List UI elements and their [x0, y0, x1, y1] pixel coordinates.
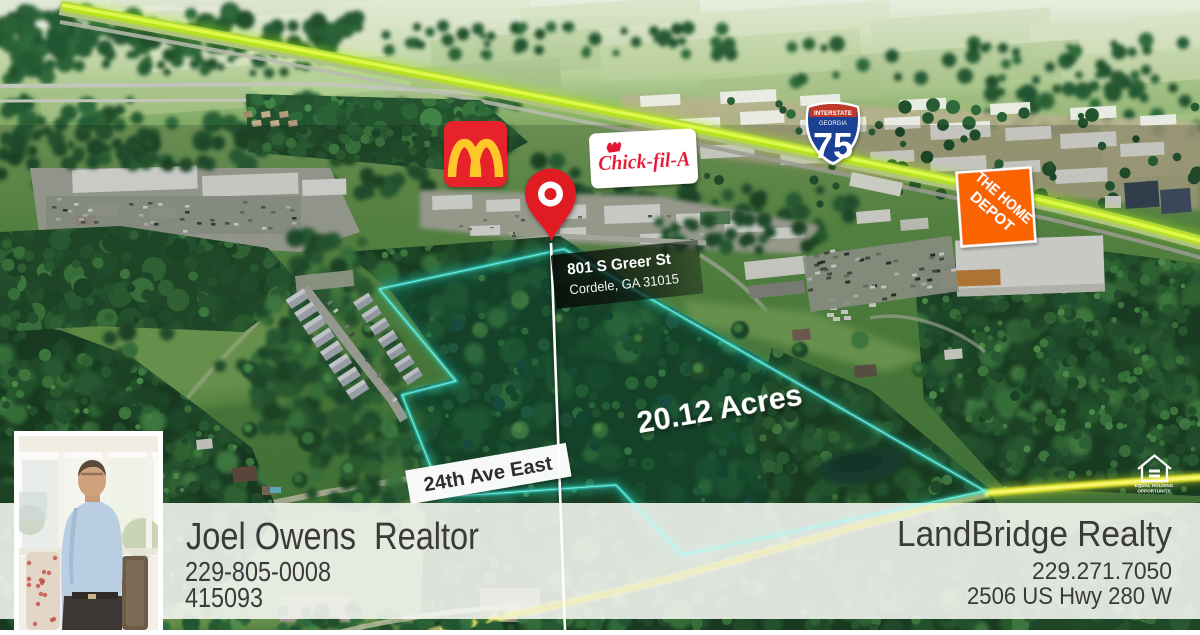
svg-text:2506 US Hwy 280 W: 2506 US Hwy 280 W	[967, 583, 1172, 610]
svg-text:229.271.7050: 229.271.7050	[1032, 558, 1172, 585]
svg-text:OPPORTUNITY: OPPORTUNITY	[1137, 489, 1170, 494]
svg-text:INTERSTATE: INTERSTATE	[814, 110, 852, 117]
svg-text:Joel Owens Realtor: Joel Owens Realtor	[186, 516, 479, 558]
svg-text:75: 75	[813, 125, 853, 166]
svg-text:415093: 415093	[185, 582, 263, 613]
svg-text:LandBridge Realty: LandBridge Realty	[897, 513, 1172, 554]
svg-text:EQUAL HOUSING: EQUAL HOUSING	[1135, 483, 1174, 488]
